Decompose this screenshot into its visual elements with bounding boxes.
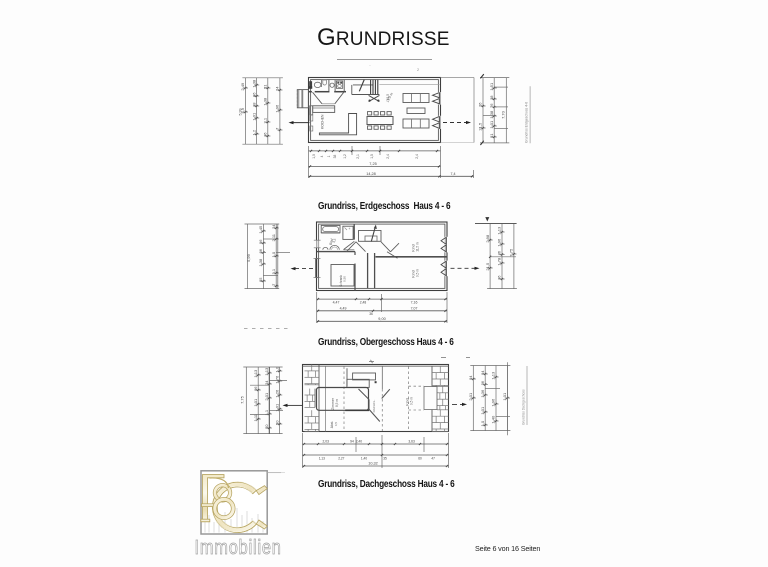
svg-text:47: 47 bbox=[431, 457, 435, 461]
svg-text:1,13: 1,13 bbox=[491, 371, 496, 380]
svg-text:1,0: 1,0 bbox=[271, 251, 276, 257]
svg-text:36: 36 bbox=[263, 132, 268, 137]
svg-text:36: 36 bbox=[369, 312, 373, 316]
svg-text:1,26: 1,26 bbox=[274, 389, 279, 398]
svg-text:36: 36 bbox=[497, 250, 502, 255]
svg-text:36: 36 bbox=[480, 380, 485, 385]
svg-text:KOCHEN: KOCHEN bbox=[321, 114, 325, 129]
svg-text:11,5 m: 11,5 m bbox=[416, 242, 420, 252]
svg-text:1,0: 1,0 bbox=[274, 366, 279, 372]
svg-text:10,32: 10,32 bbox=[368, 462, 378, 466]
svg-text:Grundriss Dachgeschoss: Grundriss Dachgeschoss bbox=[522, 389, 526, 425]
svg-text:96: 96 bbox=[258, 239, 263, 244]
svg-text:5,99: 5,99 bbox=[239, 109, 243, 116]
svg-text:7,75: 7,75 bbox=[509, 248, 514, 257]
svg-text:1,0: 1,0 bbox=[480, 420, 485, 426]
svg-text:2,49: 2,49 bbox=[240, 82, 245, 91]
svg-text:4: 4 bbox=[320, 155, 324, 157]
svg-text:7: 7 bbox=[275, 127, 280, 130]
svg-text:51: 51 bbox=[263, 84, 268, 89]
svg-text:5,99: 5,99 bbox=[246, 253, 251, 262]
svg-text:11,5: 11,5 bbox=[386, 94, 390, 100]
svg-text:9,5 m: 9,5 m bbox=[416, 269, 420, 277]
svg-text:1,96: 1,96 bbox=[491, 398, 496, 407]
svg-text:2,03: 2,03 bbox=[322, 440, 329, 444]
svg-text:2: 2 bbox=[417, 68, 419, 72]
svg-text:94: 94 bbox=[350, 440, 354, 444]
svg-text:1,38: 1,38 bbox=[263, 97, 268, 106]
svg-text:3,63: 3,63 bbox=[408, 440, 415, 444]
svg-text:1,45: 1,45 bbox=[258, 225, 263, 234]
svg-text:86: 86 bbox=[251, 92, 256, 97]
svg-text:1: 1 bbox=[327, 155, 331, 157]
svg-text:24: 24 bbox=[264, 380, 269, 385]
svg-text:2,1: 2,1 bbox=[263, 117, 268, 123]
svg-text:1,13: 1,13 bbox=[497, 226, 502, 235]
svg-text:7: 7 bbox=[271, 283, 276, 286]
svg-text:1,38: 1,38 bbox=[258, 258, 263, 267]
svg-text:1,0: 1,0 bbox=[312, 154, 316, 159]
svg-text:1,76: 1,76 bbox=[274, 375, 279, 384]
svg-text:2,11: 2,11 bbox=[271, 233, 276, 241]
svg-text:2,27: 2,27 bbox=[338, 457, 344, 461]
svg-text:7,75: 7,75 bbox=[240, 395, 245, 404]
svg-text:26: 26 bbox=[478, 102, 483, 107]
svg-text:2,48: 2,48 bbox=[360, 301, 367, 305]
svg-text:Grundriss Erdgeschoss 4-6: Grundriss Erdgeschoss 4-6 bbox=[525, 102, 529, 143]
svg-text:85: 85 bbox=[258, 277, 263, 282]
svg-text:1,38: 1,38 bbox=[251, 79, 256, 88]
svg-text:1,78: 1,78 bbox=[497, 257, 502, 266]
svg-text:76: 76 bbox=[489, 103, 494, 108]
svg-text:35: 35 bbox=[383, 457, 387, 461]
svg-text:1,13: 1,13 bbox=[253, 369, 258, 378]
svg-text:4,5: 4,5 bbox=[332, 238, 337, 244]
svg-text:3,1: 3,1 bbox=[271, 268, 276, 274]
svg-text:+: + bbox=[348, 227, 350, 231]
svg-text:38: 38 bbox=[251, 102, 256, 107]
svg-text:9,5 m: 9,5 m bbox=[410, 397, 414, 405]
svg-text:4,49: 4,49 bbox=[340, 306, 347, 310]
svg-text:Immobilien: Immobilien bbox=[195, 535, 282, 558]
svg-text:1,5: 1,5 bbox=[370, 154, 374, 159]
svg-text:9,00: 9,00 bbox=[378, 317, 385, 321]
svg-text:1,13: 1,13 bbox=[264, 367, 269, 376]
svg-text:14,28: 14,28 bbox=[366, 172, 376, 176]
svg-text:1,01: 1,01 bbox=[251, 112, 256, 121]
svg-text:94: 94 bbox=[468, 375, 473, 380]
svg-text:2,01: 2,01 bbox=[468, 392, 473, 401]
svg-text:0,50: 0,50 bbox=[343, 276, 347, 282]
svg-text:94: 94 bbox=[480, 370, 485, 375]
svg-text:1,2: 1,2 bbox=[251, 129, 256, 135]
svg-text:24: 24 bbox=[275, 86, 280, 91]
svg-text:1,01: 1,01 bbox=[489, 120, 494, 129]
svg-text:1,96: 1,96 bbox=[275, 104, 280, 113]
svg-text:7,25: 7,25 bbox=[369, 162, 376, 166]
svg-text:7,70: 7,70 bbox=[501, 110, 506, 119]
svg-text:2,1: 2,1 bbox=[356, 154, 360, 159]
svg-text:-: - bbox=[369, 63, 371, 67]
svg-text:2,4: 2,4 bbox=[386, 154, 390, 159]
svg-text:1,96: 1,96 bbox=[497, 238, 502, 247]
svg-text:8,5 m: 8,5 m bbox=[335, 399, 339, 407]
svg-text:1,51: 1,51 bbox=[489, 82, 494, 91]
svg-text:2,98: 2,98 bbox=[485, 234, 490, 243]
svg-text:86: 86 bbox=[258, 248, 263, 253]
svg-text:1,01: 1,01 bbox=[480, 406, 485, 415]
svg-text:DACHFL.: DACHFL. bbox=[372, 399, 376, 412]
svg-text:38: 38 bbox=[489, 95, 494, 100]
svg-text:1,40: 1,40 bbox=[361, 457, 367, 461]
svg-text:60: 60 bbox=[418, 457, 422, 461]
svg-text:4,47: 4,47 bbox=[333, 301, 340, 305]
svg-text:51: 51 bbox=[489, 133, 494, 138]
svg-text:2,40: 2,40 bbox=[356, 440, 363, 444]
svg-text:50: 50 bbox=[274, 420, 279, 425]
svg-text:7,4: 7,4 bbox=[451, 172, 456, 176]
svg-text:21,5: 21,5 bbox=[478, 122, 483, 131]
svg-text:38: 38 bbox=[333, 155, 337, 159]
svg-text:24: 24 bbox=[271, 224, 276, 229]
svg-text:2,01: 2,01 bbox=[264, 392, 269, 401]
svg-text:4,5: 4,5 bbox=[334, 422, 338, 427]
svg-text:50: 50 bbox=[264, 424, 269, 429]
svg-text:96: 96 bbox=[253, 386, 258, 391]
svg-text:2,4: 2,4 bbox=[415, 154, 419, 159]
svg-text:1,01: 1,01 bbox=[253, 398, 258, 407]
svg-text:1,01: 1,01 bbox=[502, 392, 507, 401]
svg-text:1,13: 1,13 bbox=[319, 457, 325, 461]
svg-text:1,2: 1,2 bbox=[343, 154, 347, 159]
svg-text:1,36: 1,36 bbox=[480, 389, 485, 398]
svg-text:1,38: 1,38 bbox=[489, 110, 494, 119]
svg-text:21,5: 21,5 bbox=[485, 262, 490, 271]
svg-text:1,40: 1,40 bbox=[491, 415, 496, 424]
svg-text:7,07: 7,07 bbox=[411, 306, 418, 310]
svg-text:36: 36 bbox=[497, 275, 502, 280]
svg-text:7,16: 7,16 bbox=[411, 301, 418, 305]
